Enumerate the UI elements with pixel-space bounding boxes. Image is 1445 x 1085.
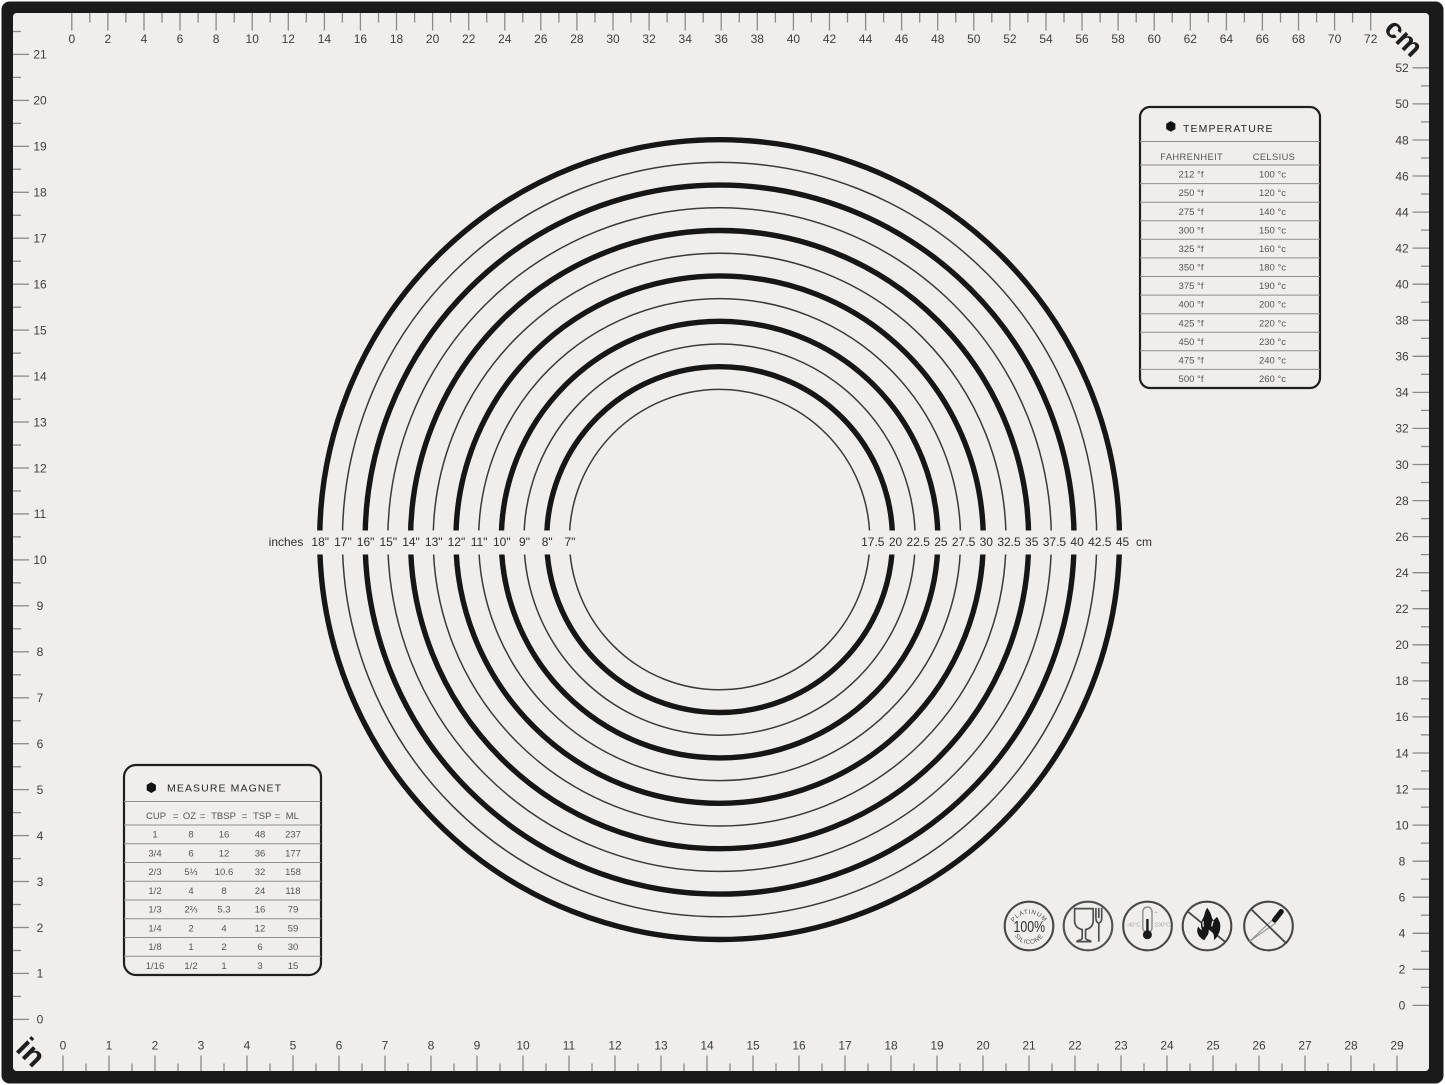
svg-text:10: 10	[1395, 818, 1409, 832]
svg-text:OZ: OZ	[183, 811, 196, 822]
svg-text:5⅓: 5⅓	[184, 867, 197, 878]
svg-text:25: 25	[934, 535, 948, 549]
svg-text:8": 8"	[542, 535, 553, 549]
svg-text:15: 15	[288, 961, 299, 972]
svg-text:2⅔: 2⅔	[184, 905, 197, 916]
svg-text:16": 16"	[357, 535, 375, 549]
svg-text:44: 44	[1395, 205, 1409, 219]
svg-text:6: 6	[188, 848, 193, 859]
svg-text:17.5: 17.5	[861, 535, 885, 549]
svg-text:12: 12	[282, 32, 296, 46]
svg-text:TEMPERATURE: TEMPERATURE	[1183, 123, 1274, 135]
svg-text:50: 50	[967, 32, 981, 46]
svg-text:20: 20	[426, 32, 440, 46]
svg-text:36: 36	[715, 32, 729, 46]
svg-text:13: 13	[33, 415, 47, 429]
svg-text:11: 11	[34, 507, 47, 521]
svg-text:27.5: 27.5	[952, 535, 976, 549]
svg-text:425 °f: 425 °f	[1179, 318, 1204, 329]
svg-text:16: 16	[354, 32, 368, 46]
svg-text:400 °f: 400 °f	[1179, 300, 1204, 311]
svg-text:5: 5	[37, 783, 44, 797]
svg-text:5: 5	[290, 1039, 297, 1053]
svg-text:32: 32	[255, 867, 266, 878]
svg-text:40: 40	[787, 32, 801, 46]
svg-text:11": 11"	[471, 535, 488, 549]
svg-text:0: 0	[1399, 999, 1406, 1013]
svg-text:16: 16	[33, 278, 47, 292]
svg-text:375 °f: 375 °f	[1179, 281, 1204, 292]
svg-text:12: 12	[33, 461, 47, 475]
svg-text:42: 42	[823, 32, 837, 46]
svg-text:212 °f: 212 °f	[1179, 170, 1204, 181]
svg-text:16: 16	[1395, 710, 1409, 724]
svg-text:15": 15"	[379, 535, 397, 549]
svg-text:12": 12"	[448, 535, 466, 549]
svg-text:11: 11	[563, 1039, 576, 1053]
svg-text:12: 12	[255, 923, 266, 934]
svg-text:24: 24	[1395, 566, 1409, 580]
svg-text:2: 2	[37, 921, 44, 935]
svg-text:3: 3	[37, 875, 44, 889]
svg-text:-40°C: -40°C	[1127, 923, 1141, 929]
svg-text:10: 10	[246, 32, 260, 46]
svg-text:100 °c: 100 °c	[1259, 170, 1286, 181]
svg-text:1: 1	[37, 967, 44, 981]
svg-text:8: 8	[37, 645, 44, 659]
svg-text:14: 14	[318, 32, 332, 46]
svg-text:8: 8	[188, 830, 193, 841]
svg-text:17: 17	[838, 1039, 852, 1053]
svg-text:6: 6	[336, 1039, 343, 1053]
svg-text:26: 26	[1395, 530, 1409, 544]
svg-text:10: 10	[516, 1039, 530, 1053]
svg-text:26: 26	[1252, 1039, 1266, 1053]
svg-text:4: 4	[221, 923, 226, 934]
svg-text:20: 20	[33, 94, 47, 108]
svg-text:450 °f: 450 °f	[1179, 337, 1204, 348]
svg-text:48: 48	[255, 830, 266, 841]
svg-text:TBSP: TBSP	[211, 811, 236, 822]
svg-text:30: 30	[980, 535, 994, 549]
svg-text:6: 6	[37, 737, 44, 751]
svg-text:4: 4	[244, 1039, 251, 1053]
svg-text:237: 237	[285, 830, 301, 841]
svg-text:40: 40	[1070, 535, 1084, 549]
svg-text:9: 9	[474, 1039, 481, 1053]
svg-text:275 °f: 275 °f	[1179, 207, 1204, 218]
svg-text:17: 17	[33, 232, 47, 246]
svg-text:32: 32	[1395, 422, 1409, 436]
svg-text:7: 7	[37, 691, 44, 705]
svg-text:0: 0	[37, 1013, 44, 1027]
svg-text:1/3: 1/3	[148, 905, 161, 916]
svg-text:46: 46	[895, 32, 909, 46]
svg-text:62: 62	[1184, 32, 1198, 46]
svg-text:120 °c: 120 °c	[1259, 188, 1286, 199]
svg-text:8: 8	[221, 886, 226, 897]
svg-text:2/3: 2/3	[148, 867, 161, 878]
svg-text:64: 64	[1220, 32, 1234, 46]
svg-text:1/16: 1/16	[146, 961, 165, 972]
svg-text:177: 177	[285, 848, 301, 859]
svg-text:22.5: 22.5	[907, 535, 931, 549]
svg-text:18: 18	[390, 32, 404, 46]
svg-text:CELSIUS: CELSIUS	[1253, 152, 1296, 162]
svg-text:21: 21	[33, 48, 47, 62]
svg-text:30: 30	[288, 942, 299, 953]
svg-text:8: 8	[213, 32, 220, 46]
svg-text:14: 14	[700, 1039, 714, 1053]
svg-text:42.5: 42.5	[1088, 535, 1112, 549]
svg-text:44: 44	[859, 32, 873, 46]
svg-text:18: 18	[33, 186, 47, 200]
svg-text:2: 2	[221, 942, 226, 953]
svg-text:1: 1	[106, 1039, 113, 1053]
svg-text:32.5: 32.5	[997, 535, 1021, 549]
svg-text:36: 36	[1395, 350, 1409, 364]
svg-text:1/4: 1/4	[148, 923, 161, 934]
svg-text:32: 32	[642, 32, 656, 46]
svg-text:58: 58	[1111, 32, 1125, 46]
svg-text:2: 2	[152, 1039, 159, 1053]
svg-text:48: 48	[931, 32, 945, 46]
svg-text:60: 60	[1148, 32, 1162, 46]
svg-text:220 °c: 220 °c	[1259, 318, 1286, 329]
svg-text:158: 158	[285, 867, 301, 878]
svg-text:1: 1	[221, 961, 226, 972]
svg-text:8: 8	[428, 1039, 435, 1053]
svg-text:42: 42	[1395, 241, 1409, 255]
svg-text:200 °c: 200 °c	[1259, 300, 1286, 311]
svg-text:3/4: 3/4	[148, 848, 161, 859]
svg-text:45: 45	[1116, 535, 1130, 549]
svg-text:12: 12	[1395, 782, 1409, 796]
svg-text:325 °f: 325 °f	[1179, 244, 1204, 255]
svg-text:38: 38	[1395, 314, 1409, 328]
svg-text:30: 30	[606, 32, 620, 46]
svg-text:52: 52	[1395, 61, 1409, 75]
svg-text:22: 22	[1068, 1039, 1082, 1053]
svg-text:20: 20	[889, 535, 903, 549]
svg-text:72: 72	[1364, 32, 1378, 46]
svg-text:52: 52	[1003, 32, 1017, 46]
svg-text:4: 4	[188, 886, 193, 897]
svg-text:16: 16	[219, 830, 230, 841]
svg-text:19: 19	[33, 140, 47, 154]
svg-text:=: =	[173, 811, 179, 822]
svg-text:19: 19	[930, 1039, 944, 1053]
svg-text:118: 118	[285, 886, 300, 897]
svg-text:14: 14	[1395, 746, 1409, 760]
svg-text:1: 1	[152, 830, 157, 841]
svg-text:2: 2	[105, 32, 112, 46]
svg-text:500 °f: 500 °f	[1179, 374, 1204, 385]
svg-text:22: 22	[1395, 602, 1409, 616]
svg-text:475 °f: 475 °f	[1179, 355, 1204, 366]
svg-text:3: 3	[198, 1039, 205, 1053]
svg-text:100%: 100%	[1014, 919, 1046, 936]
svg-text:26: 26	[534, 32, 548, 46]
svg-text:4: 4	[1399, 927, 1406, 941]
svg-text:22: 22	[462, 32, 476, 46]
svg-text:30: 30	[1395, 458, 1409, 472]
svg-text:20: 20	[976, 1039, 990, 1053]
svg-text:14: 14	[33, 369, 47, 383]
svg-text:14": 14"	[402, 535, 420, 549]
svg-text:cm: cm	[1136, 535, 1152, 549]
svg-text:13": 13"	[425, 535, 443, 549]
svg-text:230°C: 230°C	[1155, 923, 1170, 929]
svg-text:4: 4	[141, 32, 148, 46]
svg-text:24: 24	[498, 32, 512, 46]
svg-text:28: 28	[1344, 1039, 1358, 1053]
svg-text:8: 8	[1399, 855, 1406, 869]
svg-text:7": 7"	[564, 535, 575, 549]
svg-text:MEASURE MAGNET: MEASURE MAGNET	[167, 783, 282, 795]
svg-text:18": 18"	[311, 535, 329, 549]
svg-text:6: 6	[177, 32, 184, 46]
svg-text:24: 24	[255, 886, 266, 897]
svg-text:54: 54	[1039, 32, 1053, 46]
svg-text:240 °c: 240 °c	[1259, 355, 1286, 366]
svg-text:1/2: 1/2	[148, 886, 161, 897]
svg-text:inches: inches	[269, 535, 304, 549]
svg-text:6: 6	[257, 942, 262, 953]
svg-text:190 °c: 190 °c	[1259, 281, 1286, 292]
svg-text:15: 15	[746, 1039, 760, 1053]
svg-text:20: 20	[1395, 638, 1409, 652]
svg-text:18: 18	[884, 1039, 898, 1053]
svg-text:300 °f: 300 °f	[1179, 225, 1204, 236]
svg-text:40: 40	[1395, 278, 1409, 292]
svg-text:180 °c: 180 °c	[1259, 263, 1286, 274]
svg-text:CUP: CUP	[146, 811, 166, 822]
svg-text:68: 68	[1292, 32, 1306, 46]
svg-text:0: 0	[68, 32, 75, 46]
svg-text:250 °f: 250 °f	[1179, 188, 1204, 199]
svg-text:70: 70	[1328, 32, 1342, 46]
svg-text:16: 16	[792, 1039, 806, 1053]
svg-text:10": 10"	[493, 535, 511, 549]
svg-text:1/8: 1/8	[148, 942, 161, 953]
svg-text:140 °c: 140 °c	[1259, 207, 1286, 218]
svg-text:18: 18	[1395, 674, 1409, 688]
svg-text:34: 34	[1395, 386, 1409, 400]
svg-text:=: =	[200, 811, 206, 822]
svg-text:48: 48	[1395, 133, 1409, 147]
svg-text:FAHRENHEIT: FAHRENHEIT	[1160, 152, 1223, 162]
svg-text:2: 2	[188, 923, 193, 934]
svg-text:+: +	[1155, 910, 1158, 916]
svg-text:37.5: 37.5	[1043, 535, 1067, 549]
svg-text:9: 9	[37, 599, 44, 613]
svg-text:59: 59	[288, 923, 299, 934]
svg-text:230 °c: 230 °c	[1259, 337, 1286, 348]
svg-text:3: 3	[257, 961, 262, 972]
svg-text:4: 4	[37, 829, 44, 843]
svg-text:15: 15	[33, 323, 47, 337]
svg-text:=: =	[242, 811, 248, 822]
svg-text:12: 12	[219, 848, 230, 859]
svg-text:TSP: TSP	[253, 811, 271, 822]
svg-text:29: 29	[1390, 1039, 1404, 1053]
svg-text:25: 25	[1206, 1039, 1220, 1053]
svg-text:56: 56	[1075, 32, 1089, 46]
svg-text:9": 9"	[519, 535, 530, 549]
svg-text:50: 50	[1395, 97, 1409, 111]
svg-text:ML: ML	[286, 811, 299, 822]
svg-text:12: 12	[608, 1039, 622, 1053]
svg-text:24: 24	[1160, 1039, 1174, 1053]
svg-text:160 °c: 160 °c	[1259, 244, 1286, 255]
svg-text:34: 34	[679, 32, 693, 46]
svg-text:6: 6	[1399, 891, 1406, 905]
svg-text:38: 38	[751, 32, 765, 46]
svg-text:1: 1	[188, 942, 193, 953]
svg-text:350 °f: 350 °f	[1179, 263, 1204, 274]
svg-text:13: 13	[654, 1039, 668, 1053]
svg-text:10.6: 10.6	[215, 867, 234, 878]
svg-text:16: 16	[255, 905, 266, 916]
svg-text:79: 79	[288, 905, 299, 916]
svg-text:35: 35	[1025, 535, 1039, 549]
svg-text:28: 28	[1395, 494, 1409, 508]
svg-text:17": 17"	[334, 535, 352, 549]
svg-text:46: 46	[1395, 169, 1409, 183]
svg-text:28: 28	[570, 32, 584, 46]
svg-text:150 °c: 150 °c	[1259, 225, 1286, 236]
svg-text:21: 21	[1022, 1039, 1036, 1053]
svg-text:=: =	[275, 811, 281, 822]
svg-text:27: 27	[1298, 1039, 1312, 1053]
svg-text:36: 36	[255, 848, 266, 859]
svg-text:5.3: 5.3	[217, 905, 230, 916]
svg-text:23: 23	[1114, 1039, 1128, 1053]
svg-text:0: 0	[60, 1039, 67, 1053]
svg-text:2: 2	[1399, 963, 1406, 977]
svg-text:66: 66	[1256, 32, 1270, 46]
svg-text:7: 7	[382, 1039, 389, 1053]
svg-text:1/2: 1/2	[184, 961, 197, 972]
svg-text:10: 10	[33, 553, 47, 567]
svg-text:260 °c: 260 °c	[1259, 374, 1286, 385]
